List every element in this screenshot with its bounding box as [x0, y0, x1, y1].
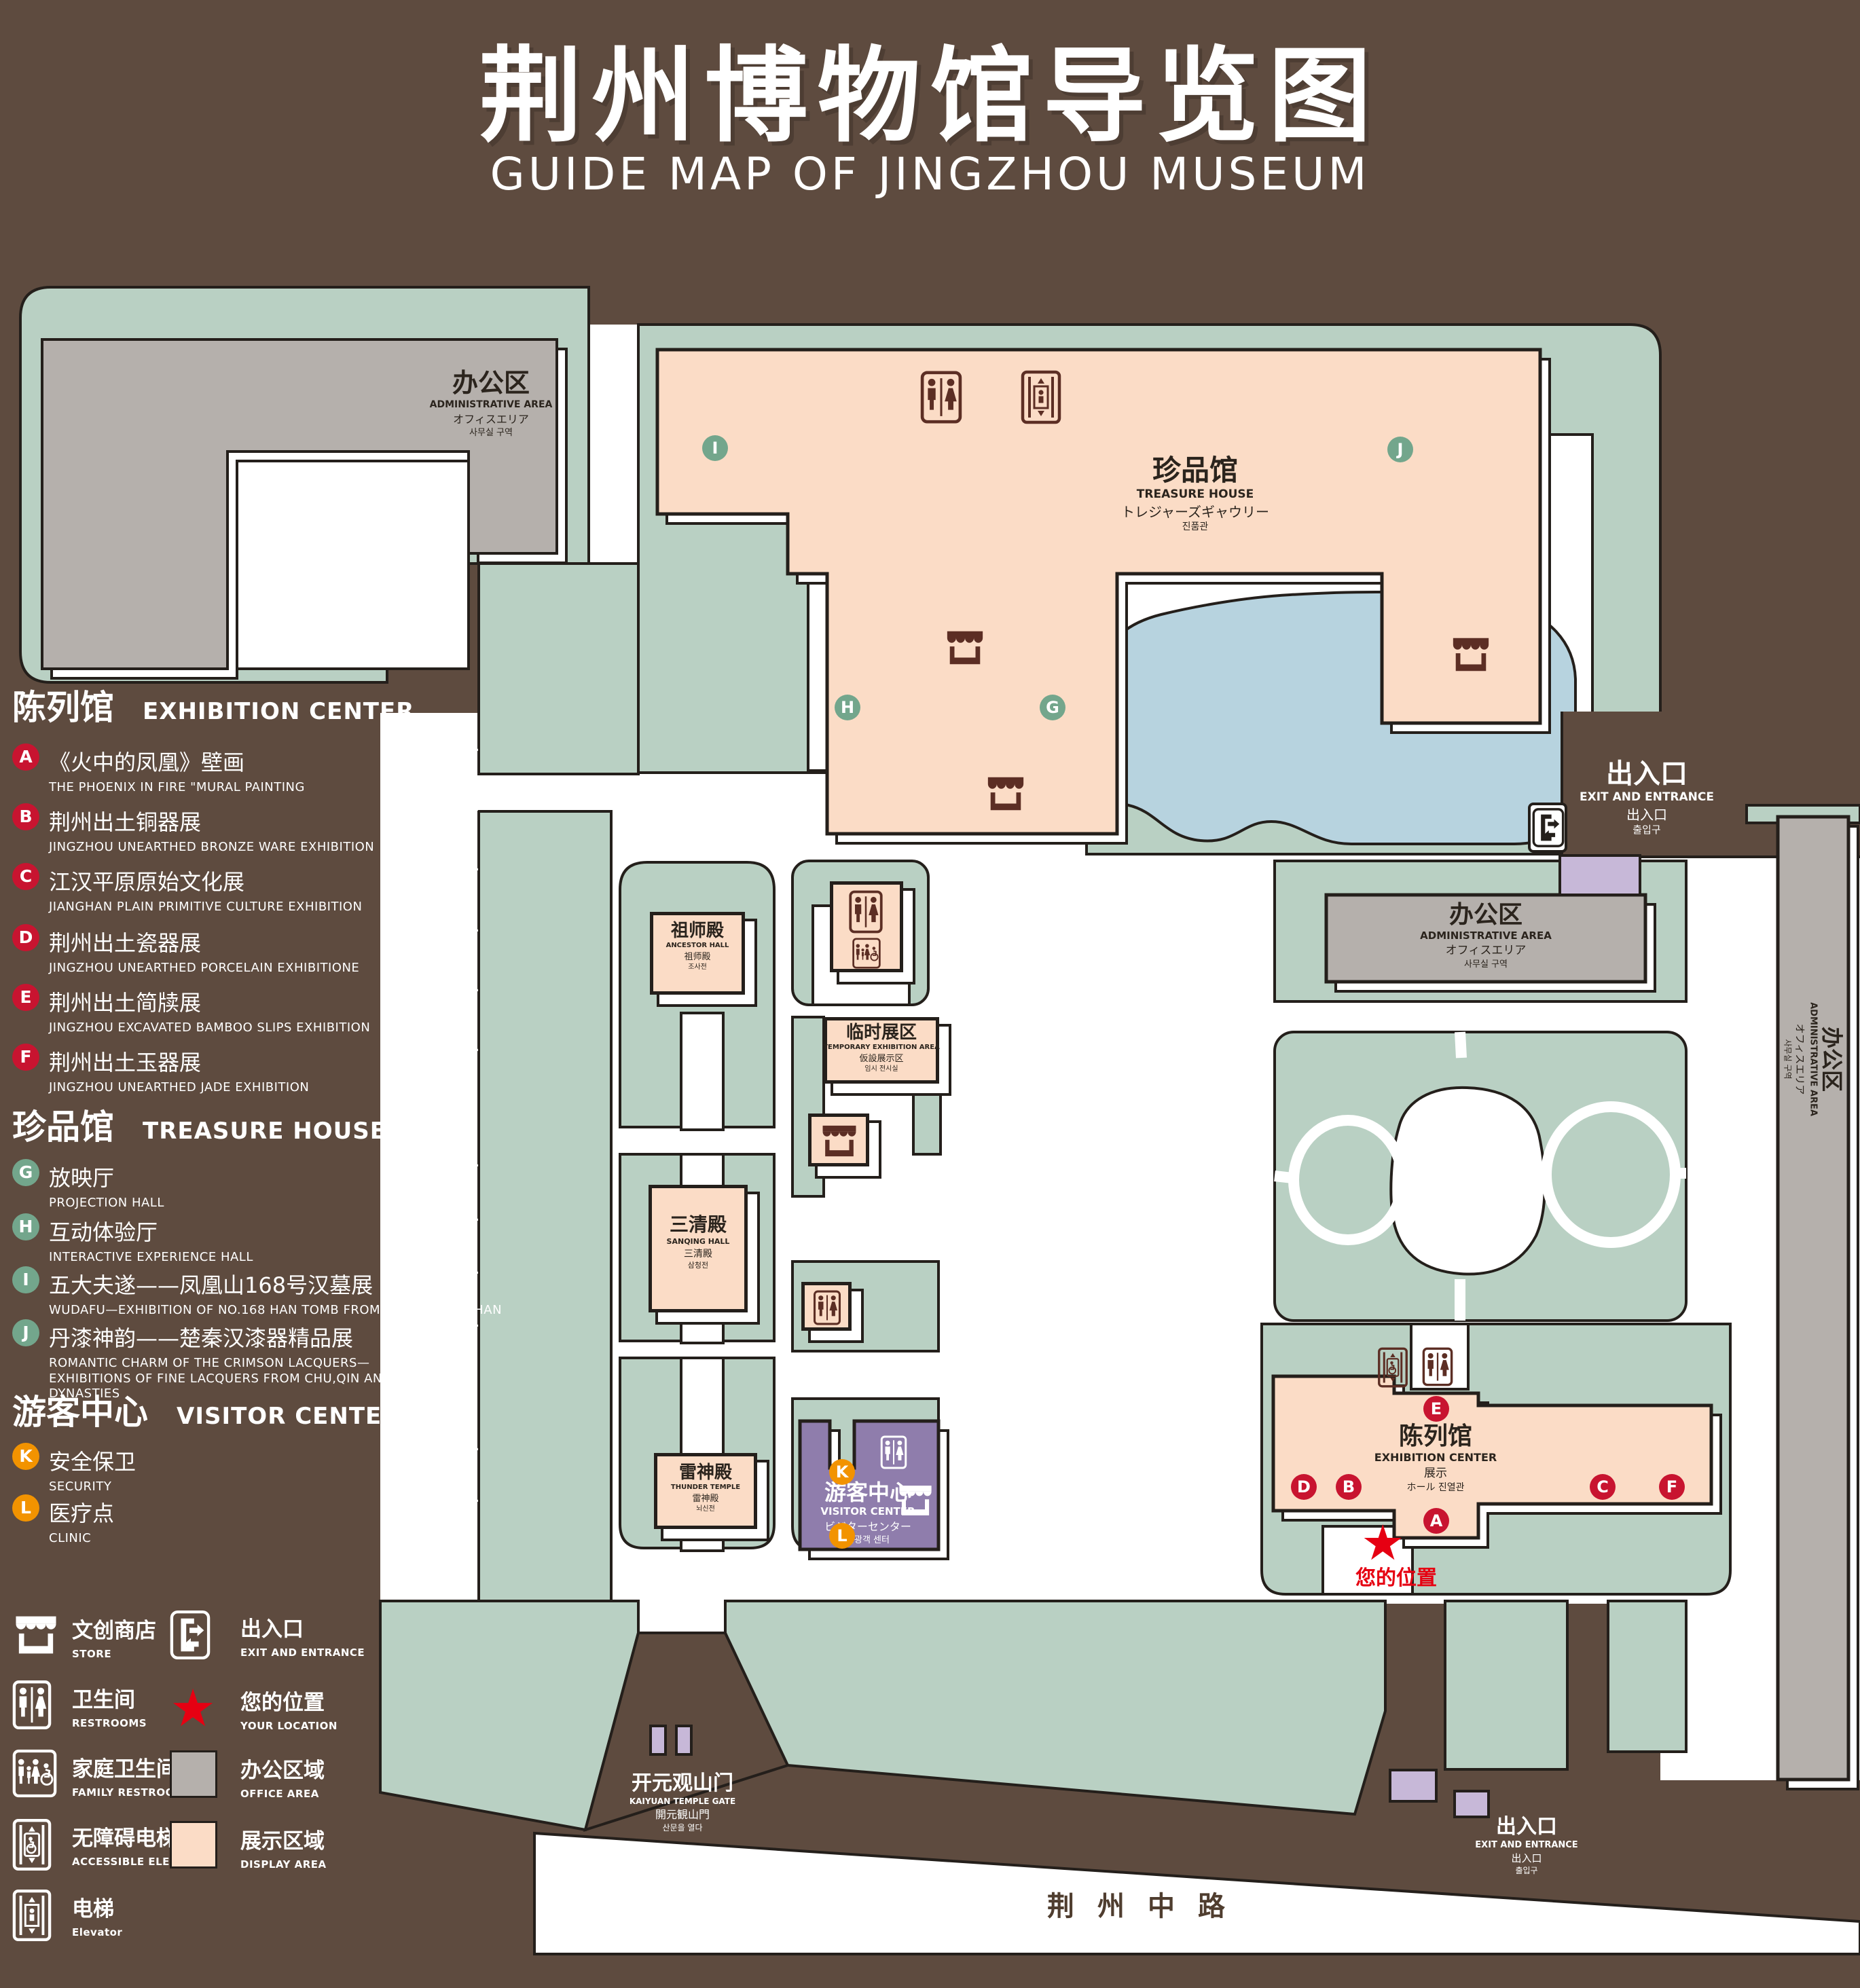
label-kaiyuan-gate: 开元观山门 KAIYUAN TEMPLE GATE 開元観山門 산문을 열다 — [630, 1773, 735, 1832]
label-temporary-exhibition: 临时展区 TEMPORARY EXHIBITION AREA 仮設展示区 임시 … — [823, 1024, 940, 1073]
marker-F: F — [1659, 1474, 1685, 1500]
accessible-elevator-icon — [14, 1820, 50, 1869]
small-restroom-block — [801, 1282, 852, 1331]
exit-platform — [1453, 1790, 1490, 1818]
elevator-icon — [1020, 370, 1062, 424]
label-sanqing-hall: 三清殿 SANQING HALL 三清殿 삼청전 — [667, 1215, 730, 1269]
label-exit-east: 出入口 EXIT AND ENTRANCE 出入口 출입구 — [1580, 760, 1714, 835]
guide-map-sign: 荆州博物馆导览图 GUIDE MAP OF JINGZHOU MUSEUM — [0, 0, 1860, 1988]
display-area-swatch — [170, 1821, 217, 1869]
marker-D: D — [1291, 1474, 1317, 1500]
page-subtitle: GUIDE MAP OF JINGZHOU MUSEUM — [0, 148, 1860, 200]
legend-section-treasure-house: 珍品馆TREASURE HOUSE — [12, 1100, 386, 1149]
label-road: 荆州中路 — [1047, 1893, 1248, 1920]
label-exit-south: 出入口 EXIT AND ENTRANCE 出入口 출입구 — [1475, 1817, 1578, 1875]
label-treasure-house: 珍品馆 TREASURE HOUSE トレジャーズギャウリー 진품관 — [1121, 456, 1269, 532]
marker-C: C — [1590, 1474, 1616, 1500]
legend-item-E: E 荆州出土简牍展 JINGZHOU EXCAVATED BAMBOO SLIP… — [12, 986, 479, 1035]
store-kiosk-box — [808, 1113, 869, 1166]
marker-E: E — [1423, 1396, 1449, 1422]
restrooms-icon — [850, 892, 881, 932]
marker-A: A — [1423, 1508, 1449, 1534]
central-restroom-block — [830, 881, 903, 972]
marker-H: H — [835, 695, 860, 720]
store-icon — [16, 1617, 56, 1654]
store-icon — [944, 628, 986, 667]
location-star-icon: ★ — [170, 1682, 216, 1734]
exit-platform — [1389, 1769, 1438, 1803]
marker-B: B — [1336, 1474, 1362, 1500]
gate-pillar — [675, 1725, 693, 1756]
legend-section-exhibition-center: 陈列馆EXHIBITION CENTER — [12, 680, 414, 729]
exit-icon — [172, 1612, 208, 1658]
restrooms-icon — [920, 370, 962, 424]
exit-icon-box — [1528, 803, 1567, 853]
marker-K: K — [829, 1459, 855, 1485]
label-your-location: 您的位置 — [1355, 1568, 1437, 1589]
family-restrooms-icon — [854, 939, 880, 968]
gate-pillar — [649, 1725, 667, 1756]
accessible-elevator-icon — [1377, 1347, 1408, 1388]
label-admin-nw: 办公区 ADMINISTRATIVE AREA オフィスエリア 사무실 구역 — [430, 370, 553, 437]
marker-G: G — [1040, 695, 1065, 720]
label-thunder-temple: 雷神殿 THUNDER TEMPLE 雷神殿 뇌신전 — [671, 1464, 740, 1513]
marker-J: J — [1387, 437, 1413, 462]
store-icon — [985, 774, 1027, 813]
store-icon — [823, 1126, 856, 1156]
legend-item-F: F 荆州出土玉器展 JINGZHOU UNEARTHED JADE EXHIBI… — [12, 1046, 479, 1094]
marker-I: I — [702, 435, 728, 461]
restrooms-icon — [1422, 1347, 1453, 1386]
store-icon — [1450, 635, 1492, 674]
marker-L: L — [829, 1523, 855, 1549]
legend-item-D: D 荆州出土瓷器展 JINGZHOU UNEARTHED PORCELAIN E… — [12, 926, 479, 975]
legend-item-I: I 五大夫遂——凤凰山168号汉墓展 WUDAFU—EXHIBITION OF … — [12, 1268, 479, 1317]
restrooms-icon — [14, 1682, 50, 1728]
your-location-star: ★ — [1361, 1518, 1405, 1567]
restrooms-icon — [815, 1291, 840, 1324]
label-exhibition-center: 陈列馆 EXHIBITION CENTER 展示 ホール 진열관 — [1374, 1424, 1497, 1492]
legend-item-L: L 医疗点 CLINIC 1F — [12, 1496, 479, 1545]
legend-item-C: C 江汉平原原始文化展 JIANGHAN PLAIN PRIMITIVE CUL… — [12, 865, 479, 914]
exit-platform — [1558, 854, 1641, 896]
label-ancestor-hall: 祖师殿 ANCESTOR HALL 祖师殿 조사전 — [666, 922, 729, 971]
label-admin-se-strip: 办公区 ADMINISTRATIVE AREA オフィスエリア 사무실 구역 — [1784, 1002, 1843, 1116]
restrooms-icon — [880, 1435, 907, 1469]
legend-section-visitor-center: 游客中心VISITOR CENTER — [12, 1385, 400, 1434]
office-area-swatch — [170, 1750, 217, 1798]
page-title: 荆州博物馆导览图 — [0, 12, 1860, 162]
legend-item-H: H 互动体验厅 INTERACTIVE EXPERIENCE HALL 1F — [12, 1215, 479, 1264]
label-admin-e: 办公区 ADMINISTRATIVE AREA オフィスエリア 사무실 구역 — [1420, 903, 1552, 969]
legend-item-G: G 放映厅 PROJECTION HALL 1F — [12, 1161, 479, 1210]
legend-item-K: K 安全保卫 SECURITY 1F — [12, 1445, 479, 1494]
family-restrooms-icon — [14, 1751, 55, 1796]
exit-icon — [1533, 809, 1563, 846]
elevator-icon — [14, 1891, 50, 1940]
legend-item-B: B 荆州出土铜器展 JINGZHOU UNEARTHED BRONZE WARE… — [12, 805, 479, 854]
legend-item-A: A 《火中的凤凰》壁画 THE PHOENIX IN FIRE "MURAL P… — [12, 745, 479, 794]
